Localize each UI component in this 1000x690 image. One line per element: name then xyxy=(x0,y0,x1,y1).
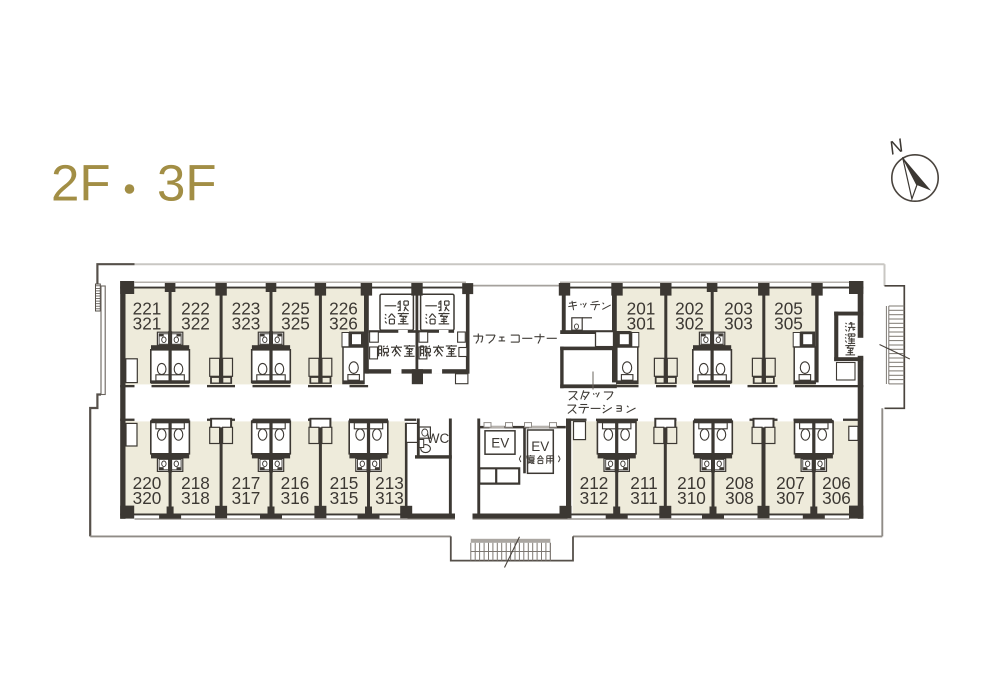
svg-text:313: 313 xyxy=(375,488,404,508)
svg-text:EV: EV xyxy=(491,436,509,451)
svg-text:306: 306 xyxy=(822,488,851,508)
svg-text:307: 307 xyxy=(776,488,805,508)
svg-text:318: 318 xyxy=(181,488,210,508)
svg-text:317: 317 xyxy=(232,488,261,508)
svg-text:305: 305 xyxy=(774,314,803,334)
svg-text:EV: EV xyxy=(531,439,549,454)
svg-text:326: 326 xyxy=(329,314,358,334)
svg-text:308: 308 xyxy=(725,488,754,508)
svg-text:301: 301 xyxy=(627,314,656,334)
svg-text:WC: WC xyxy=(427,431,450,446)
svg-text:2F: 2F xyxy=(51,155,111,212)
svg-text:322: 322 xyxy=(181,314,210,334)
svg-text:311: 311 xyxy=(630,488,657,508)
svg-text:310: 310 xyxy=(677,488,706,508)
svg-text:315: 315 xyxy=(330,488,359,508)
svg-text:323: 323 xyxy=(232,314,261,334)
svg-text:302: 302 xyxy=(675,314,704,334)
svg-text:312: 312 xyxy=(580,488,609,508)
svg-text:321: 321 xyxy=(133,314,162,334)
svg-text:325: 325 xyxy=(281,314,310,334)
svg-text:316: 316 xyxy=(281,488,310,508)
svg-text:3F: 3F xyxy=(157,155,217,212)
svg-text:303: 303 xyxy=(724,314,753,334)
svg-text:320: 320 xyxy=(133,488,162,508)
